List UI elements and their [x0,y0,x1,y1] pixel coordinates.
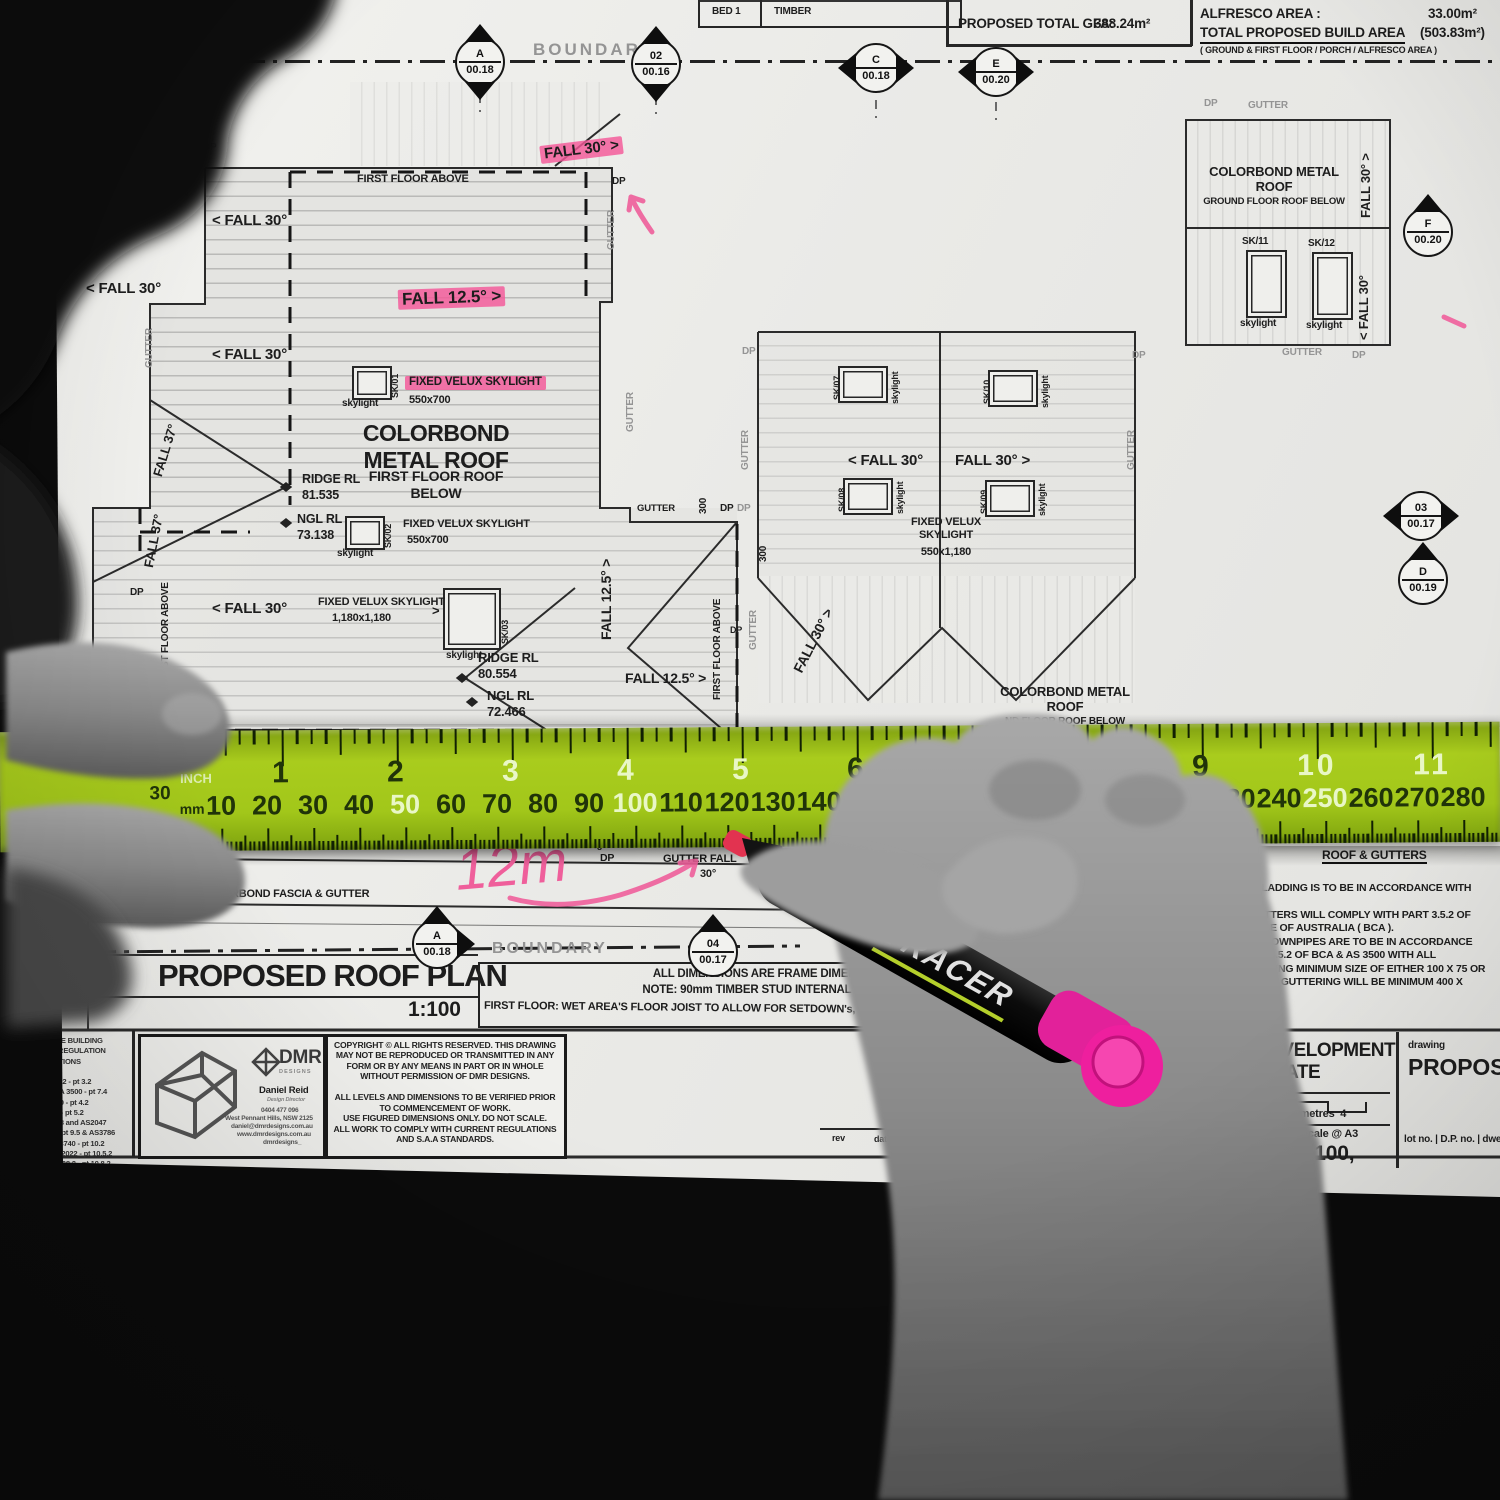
knuckle-shading [1105,774,1185,826]
photo-of-roof-plan: BED 1 TIMBER PROPOSED TOTAL GFA: 388.24m… [0,0,1500,1500]
photo-over-layer [0,0,1500,1500]
thumb [942,837,1077,935]
knuckle-shading [989,760,1081,820]
